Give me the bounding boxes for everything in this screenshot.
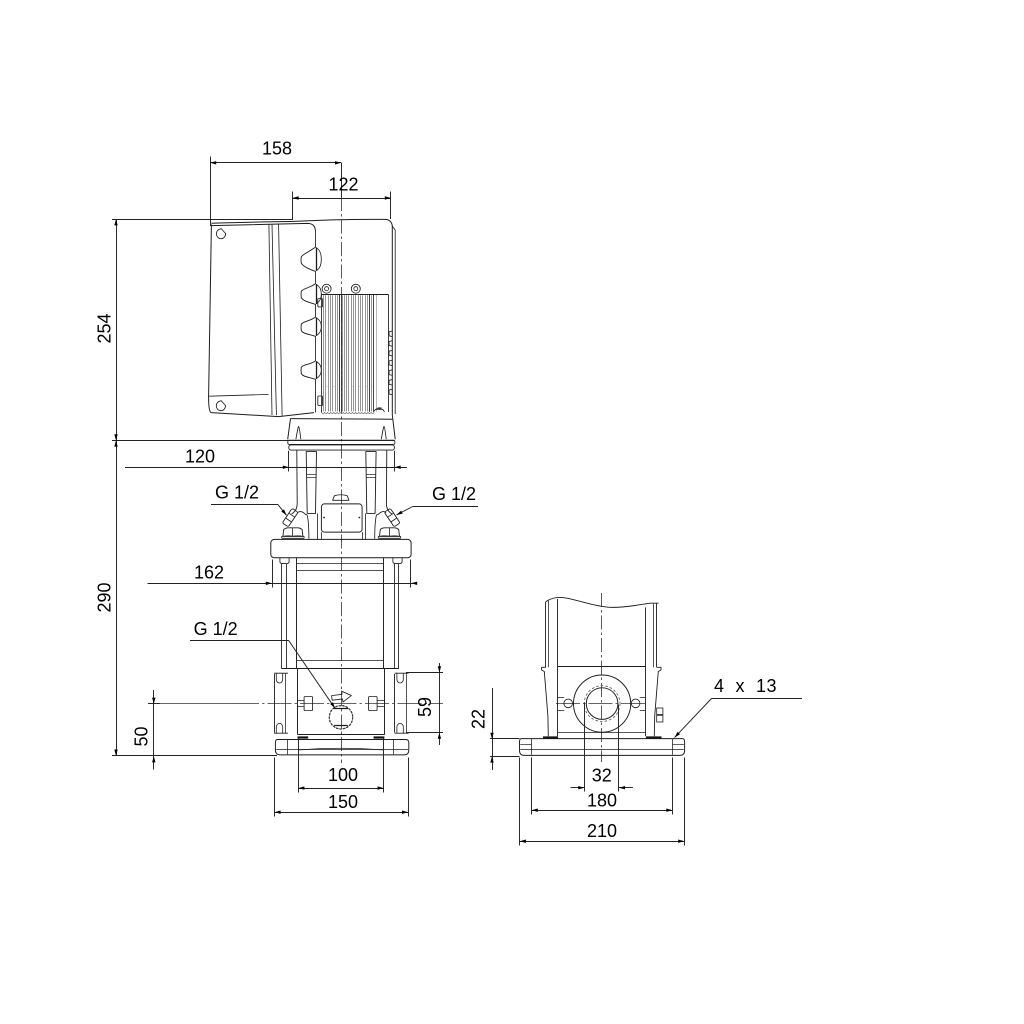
svg-text:50: 50	[132, 726, 152, 746]
svg-text:4 x 13: 4 x 13	[714, 676, 777, 696]
svg-text:100: 100	[328, 765, 358, 785]
svg-text:32: 32	[592, 766, 612, 786]
svg-text:G 1/2: G 1/2	[215, 483, 259, 503]
svg-text:122: 122	[328, 175, 358, 195]
svg-text:254: 254	[95, 313, 115, 343]
svg-text:150: 150	[328, 792, 358, 812]
svg-text:G 1/2: G 1/2	[194, 619, 238, 639]
svg-text:59: 59	[415, 697, 435, 717]
svg-text:22: 22	[469, 709, 489, 729]
svg-text:158: 158	[262, 139, 292, 159]
svg-text:210: 210	[587, 821, 617, 841]
svg-text:290: 290	[95, 582, 115, 612]
svg-text:G 1/2: G 1/2	[432, 484, 476, 504]
svg-text:162: 162	[194, 563, 224, 583]
svg-text:180: 180	[587, 791, 617, 811]
svg-text:120: 120	[185, 447, 215, 467]
